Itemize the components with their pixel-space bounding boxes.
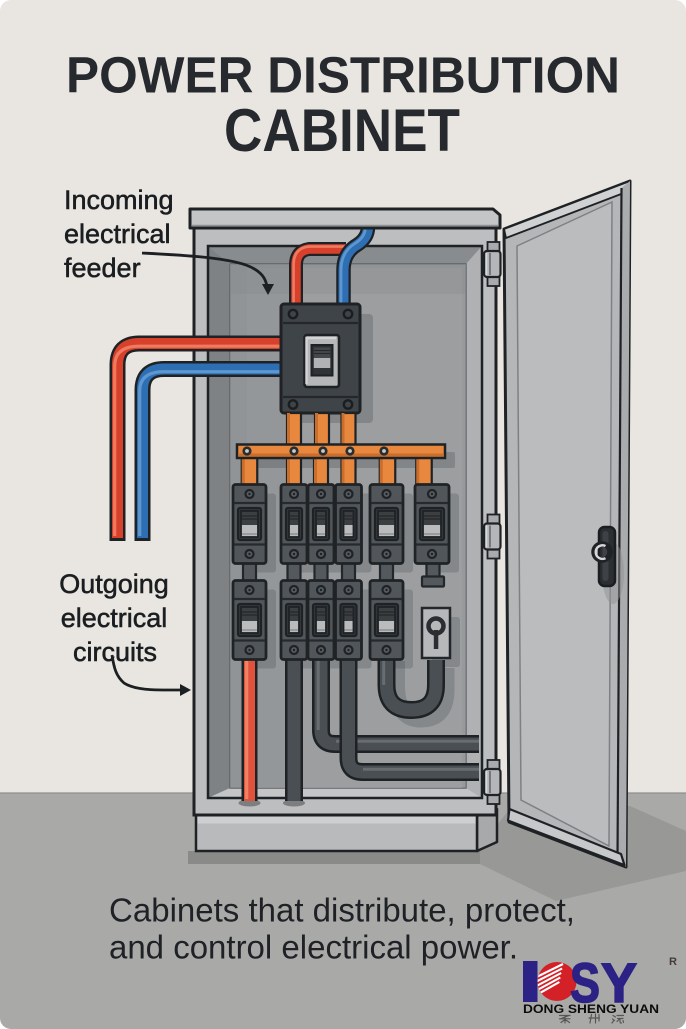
svg-text:POWER DISTRIBUTION: POWER DISTRIBUTION <box>66 47 620 104</box>
svg-text:R: R <box>669 956 677 968</box>
svg-text:Incoming: Incoming <box>64 185 174 215</box>
svg-text:Cabinets that distribute, prot: Cabinets that distribute, protect, <box>109 892 575 929</box>
svg-text:DONG SHENG YUAN: DONG SHENG YUAN <box>523 1002 659 1016</box>
svg-text:circuits: circuits <box>73 637 157 667</box>
svg-text:electrical: electrical <box>61 603 168 633</box>
svg-text:electrical: electrical <box>64 219 171 249</box>
svg-text:and control electrical power.: and control electrical power. <box>109 929 518 966</box>
svg-text:CABINET: CABINET <box>224 97 460 164</box>
svg-text:Outgoing: Outgoing <box>59 569 169 599</box>
svg-text:feeder: feeder <box>64 253 141 283</box>
